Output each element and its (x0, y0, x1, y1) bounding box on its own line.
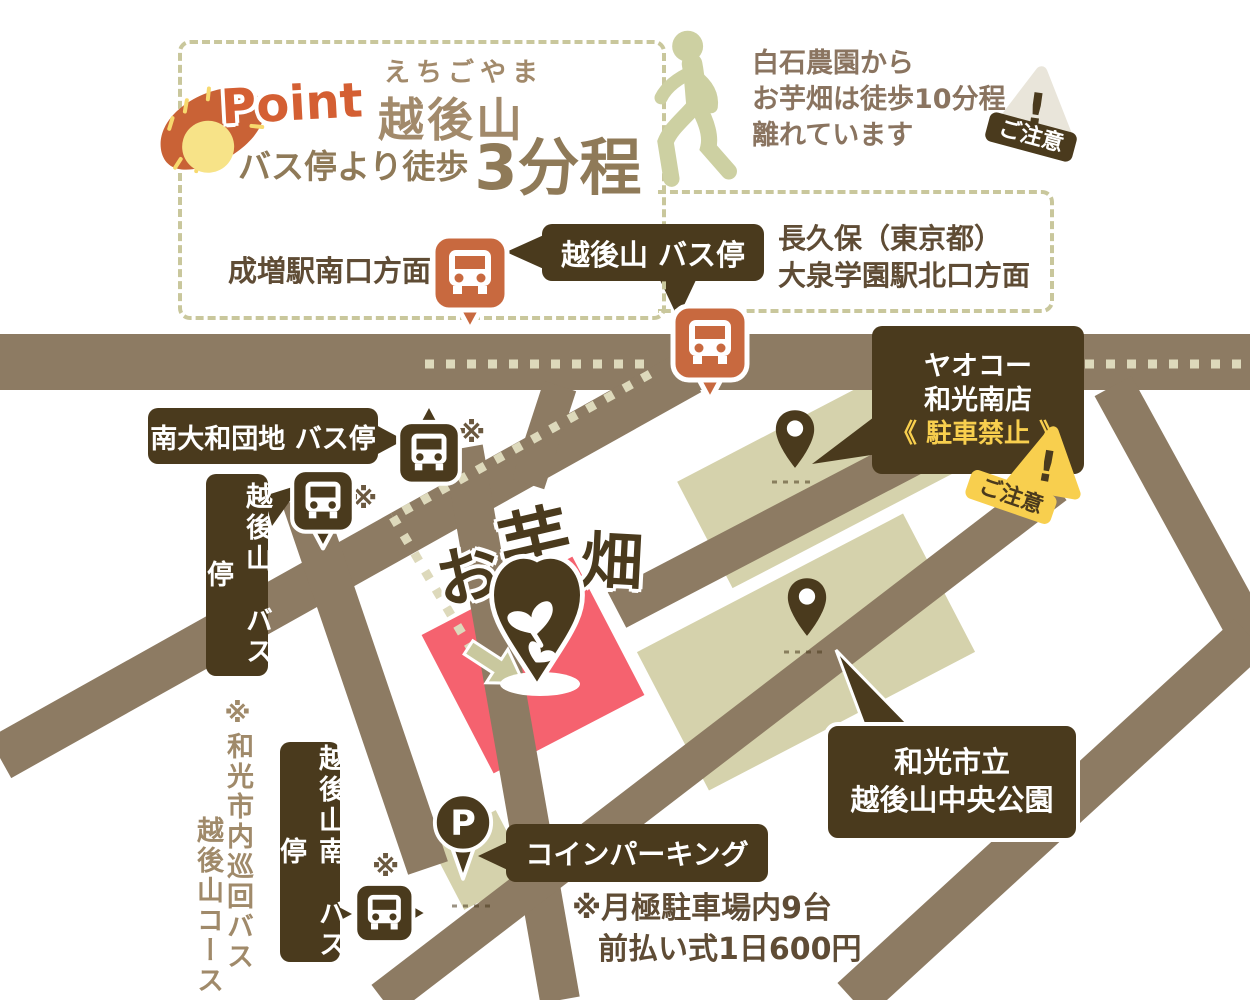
point-label: Point (220, 72, 364, 135)
walk-note: 白石農園から お芋畑は徒歩10分程 離れています (752, 46, 1006, 154)
park-bubble: 和光市立 越後山中央公園 (824, 722, 1080, 842)
bus-stop-pin-orange-1 (428, 232, 512, 336)
walk-note-line3: 離れています (752, 118, 1006, 154)
direction-narimasu: 成増駅南口方面 (228, 248, 431, 290)
loop-bus-note-line2: 越後山コース (188, 816, 227, 1006)
yaoko-line2: 和光南店 (924, 384, 1032, 418)
map-pin-icon-yaoko (772, 408, 818, 472)
bus-stop-pin-dark-3 (352, 880, 434, 946)
bus-stop-pin-dark-2 (288, 466, 358, 554)
walk-note-line1: 白石農園から (752, 46, 1006, 82)
park-line2: 越後山中央公園 (850, 782, 1053, 820)
walk-note-line2: お芋畑は徒歩10分程 (752, 82, 1006, 118)
direction-nagakubo-line1: 長久保（東京都） (778, 221, 1030, 258)
direction-nagakubo: 長久保（東京都） 大泉学園駅北口方面 (778, 221, 1030, 295)
parking-note-line2: 前払い式1日600円 (572, 929, 862, 970)
parking-note: ※月極駐車場内9台 前払い式1日600円 (572, 888, 862, 971)
walk-time: 3分程 (474, 137, 641, 199)
road-g (1113, 386, 1250, 636)
yaoko-line1: ヤオコー (924, 350, 1032, 384)
direction-nagakubo-line2: 大泉学園駅北口方面 (778, 258, 1030, 295)
field-pin-icon (478, 548, 596, 694)
map-poster: Point えちごやま 越後山 バス停より徒歩 3分程 白石農園から お芋畑は徒… (0, 0, 1250, 1000)
asterisk-mark-3: ※ (372, 850, 399, 883)
bus-stop-bubble-minami-yamato: 南大和団地 バス停 (148, 408, 378, 464)
bus-stop-bubble-echigoyama-minami: 越後山南 バス停 (280, 742, 340, 962)
park-line1: 和光市立 (894, 744, 1010, 782)
walk-time-line: バス停より徒歩 3分程 (238, 136, 641, 199)
coin-parking-bubble: コインパーキング (506, 824, 768, 882)
bus-stop-pin-orange-2 (668, 302, 752, 406)
bus-stop-bubble-echigoyama-vertical: 越後山 バス停 (206, 474, 268, 676)
bus-stop-bubble-echigoyama: 越後山 バス停 (542, 224, 764, 281)
map-pin-icon-park (784, 576, 830, 640)
parking-note-line1: ※月極駐車場内9台 (572, 888, 862, 929)
parking-p-mark: P (450, 804, 476, 844)
parking-pin-icon: P (430, 790, 496, 886)
walking-person-icon (640, 30, 750, 192)
bus-stop-pin-dark-1 (394, 398, 464, 486)
walk-prefix: バス停より徒歩 (238, 136, 468, 199)
